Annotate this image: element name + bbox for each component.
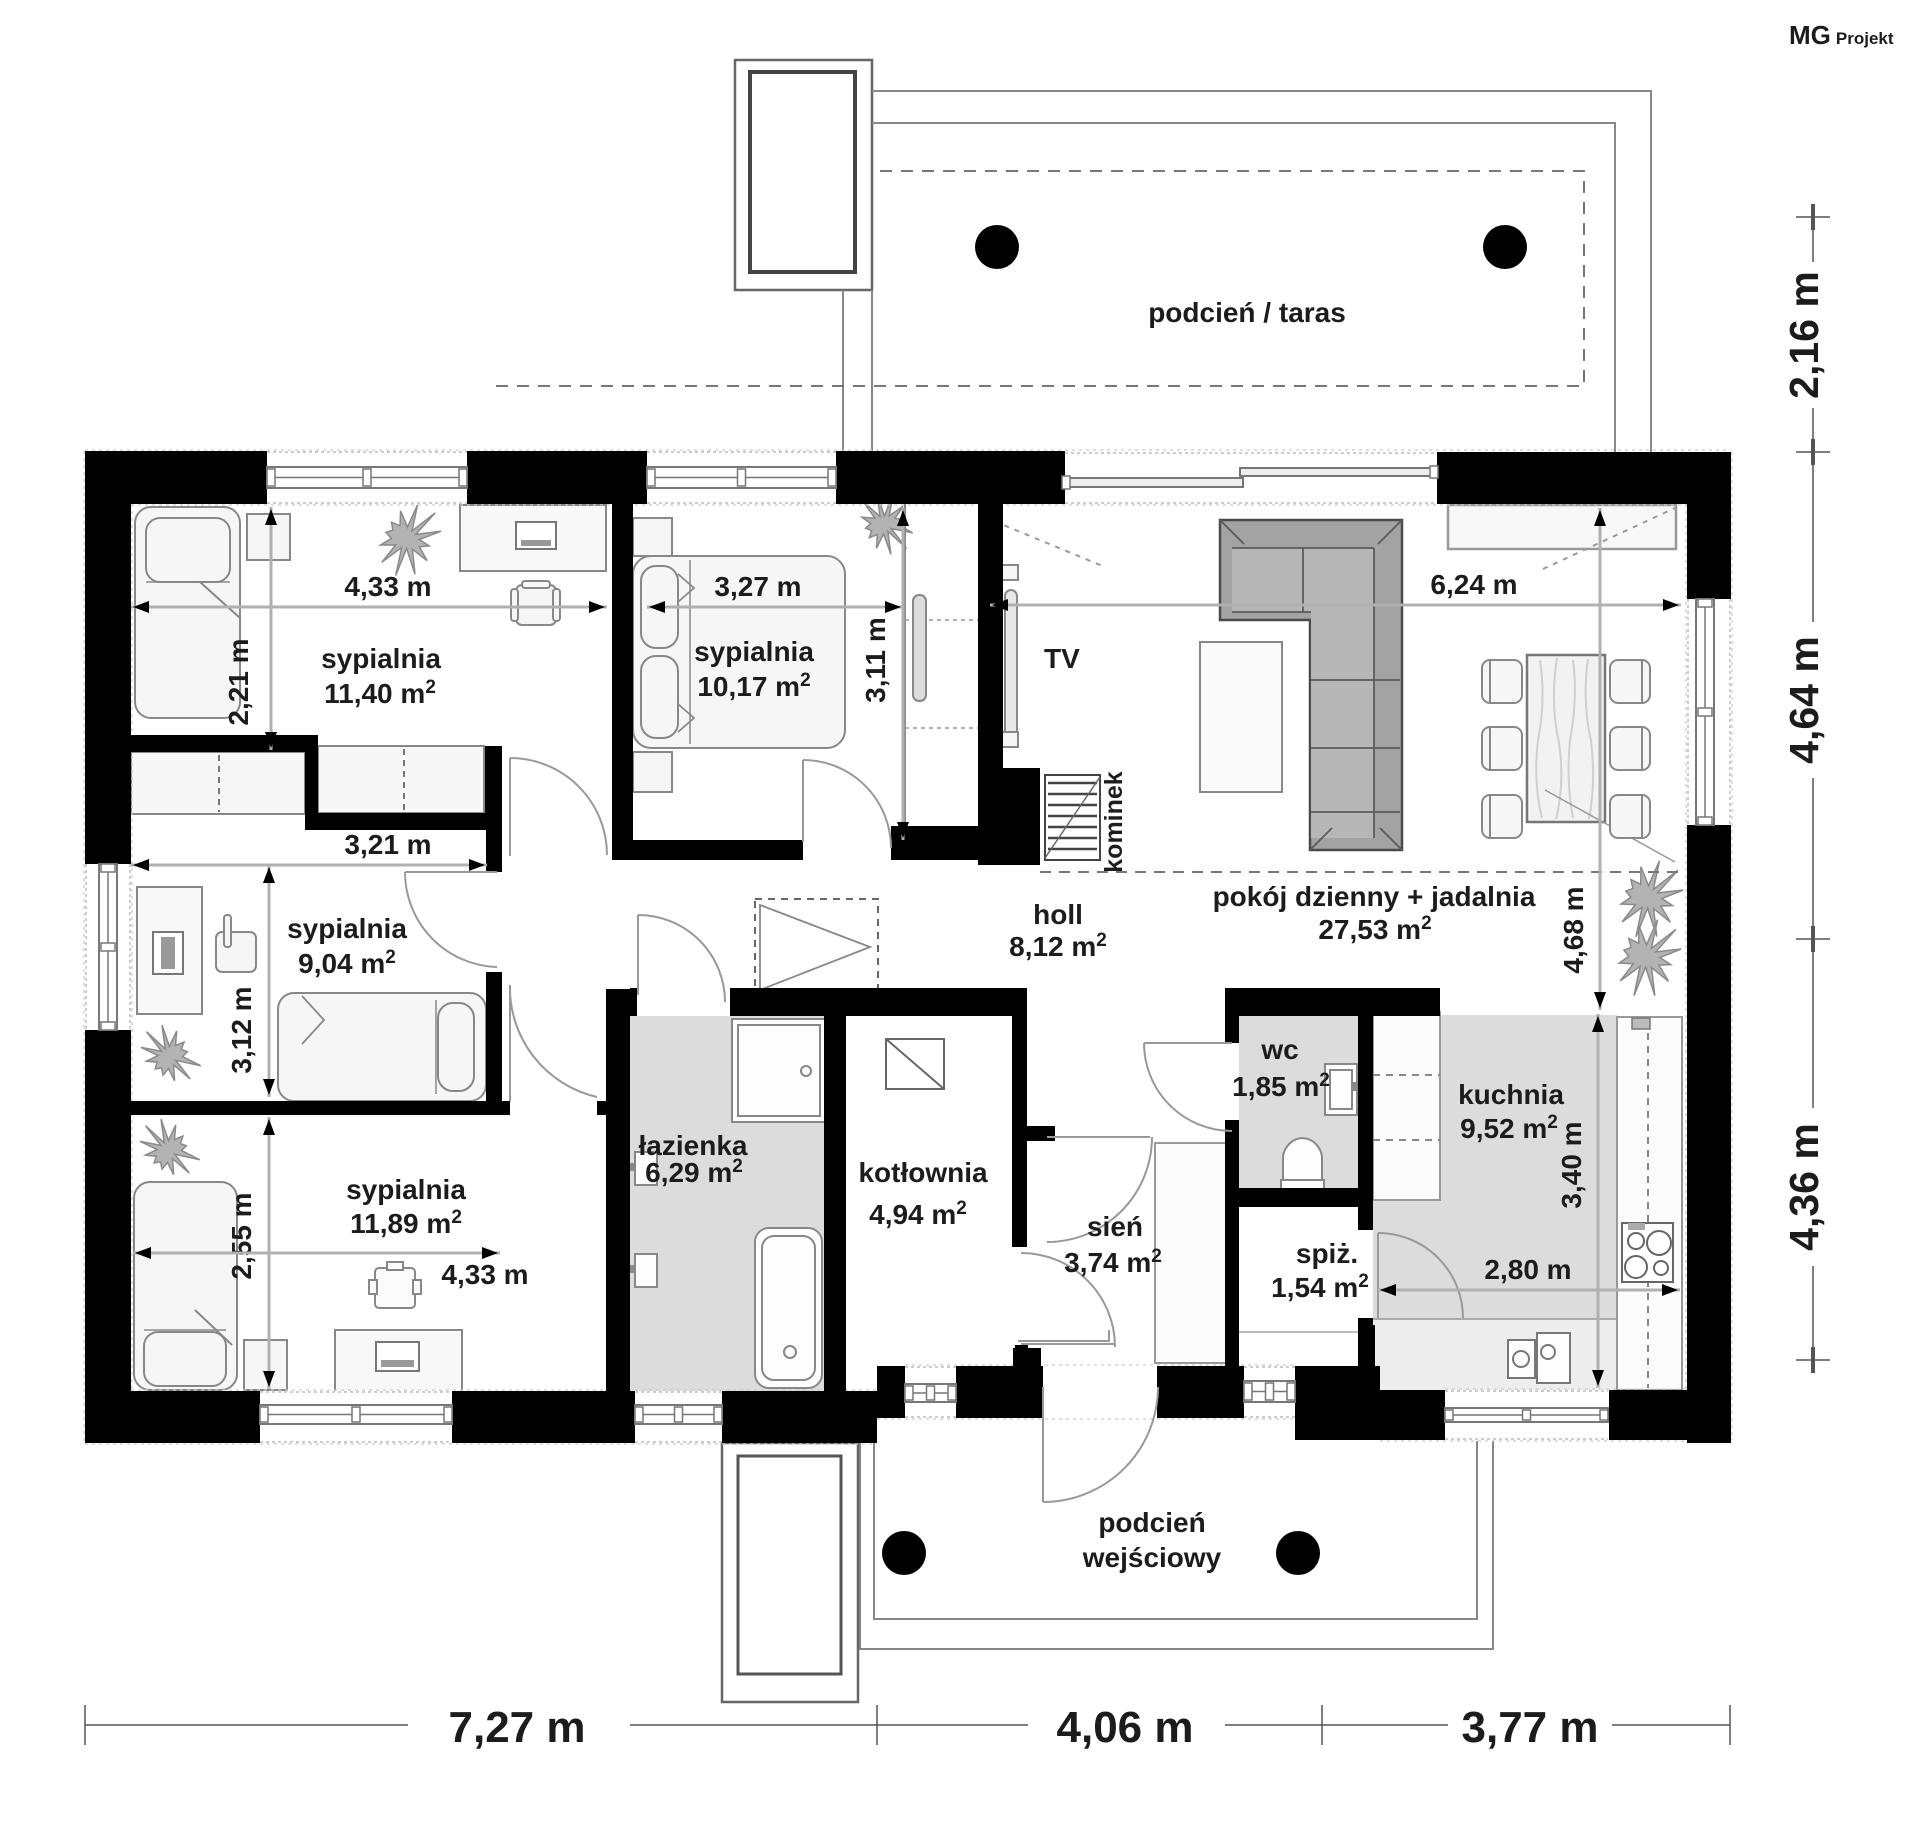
- svg-text:6,29 m2: 6,29 m2: [645, 1156, 743, 1188]
- svg-text:sypialnia: sypialnia: [321, 643, 441, 674]
- svg-text:kuchnia: kuchnia: [1458, 1079, 1564, 1110]
- svg-text:9,52 m2: 9,52 m2: [1460, 1112, 1558, 1144]
- svg-text:kominek: kominek: [1100, 771, 1128, 873]
- svg-text:TV: TV: [1044, 643, 1080, 674]
- svg-text:4,36 m: 4,36 m: [1781, 1123, 1827, 1251]
- svg-text:10,17 m2: 10,17 m2: [697, 670, 810, 702]
- svg-text:11,89 m2: 11,89 m2: [350, 1207, 462, 1239]
- svg-text:sień: sień: [1087, 1211, 1143, 1242]
- svg-text:4,68 m: 4,68 m: [1558, 886, 1589, 973]
- svg-text:podcień: podcień: [1098, 1507, 1205, 1538]
- svg-text:2,55 m: 2,55 m: [226, 1192, 257, 1279]
- svg-text:6,24 m: 6,24 m: [1430, 569, 1517, 600]
- svg-text:sypialnia: sypialnia: [287, 913, 407, 944]
- svg-text:2,80 m: 2,80 m: [1484, 1254, 1571, 1285]
- svg-text:4,06 m: 4,06 m: [1057, 1703, 1194, 1752]
- svg-text:3,21 m: 3,21 m: [344, 829, 431, 860]
- svg-text:27,53 m2: 27,53 m2: [1318, 913, 1431, 945]
- svg-text:11,40 m2: 11,40 m2: [324, 677, 436, 709]
- svg-text:spiż.: spiż.: [1296, 1238, 1358, 1269]
- svg-text:3,77 m: 3,77 m: [1462, 1703, 1599, 1752]
- svg-text:sypialnia: sypialnia: [694, 636, 814, 667]
- svg-text:wc: wc: [1260, 1034, 1298, 1065]
- svg-text:4,33 m: 4,33 m: [344, 571, 431, 602]
- svg-text:2,16 m: 2,16 m: [1781, 271, 1827, 399]
- svg-text:4,33 m: 4,33 m: [441, 1259, 528, 1290]
- svg-text:3,40 m: 3,40 m: [1556, 1121, 1587, 1208]
- svg-text:3,11 m: 3,11 m: [860, 617, 891, 703]
- svg-text:1,54 m2: 1,54 m2: [1271, 1271, 1369, 1303]
- svg-text:sypialnia: sypialnia: [346, 1174, 466, 1205]
- svg-text:pokój dzienny + jadalnia: pokój dzienny + jadalnia: [1213, 881, 1536, 912]
- svg-text:9,04 m2: 9,04 m2: [298, 947, 396, 979]
- svg-text:3,74 m2: 3,74 m2: [1064, 1246, 1162, 1278]
- svg-text:2,21 m: 2,21 m: [223, 638, 254, 725]
- svg-text:holl: holl: [1033, 899, 1083, 930]
- svg-text:3,27 m: 3,27 m: [714, 571, 801, 602]
- svg-text:podcień / taras: podcień / taras: [1148, 297, 1346, 328]
- svg-text:3,12 m: 3,12 m: [226, 986, 257, 1073]
- svg-text:kotłownia: kotłownia: [858, 1157, 988, 1188]
- svg-text:wejściowy: wejściowy: [1082, 1542, 1222, 1573]
- svg-text:8,12 m2: 8,12 m2: [1009, 930, 1107, 962]
- svg-text:1,85 m2: 1,85 m2: [1232, 1070, 1330, 1102]
- svg-text:4,64 m: 4,64 m: [1781, 636, 1827, 764]
- svg-text:4,94 m2: 4,94 m2: [869, 1198, 967, 1230]
- svg-text:7,27 m: 7,27 m: [449, 1703, 586, 1752]
